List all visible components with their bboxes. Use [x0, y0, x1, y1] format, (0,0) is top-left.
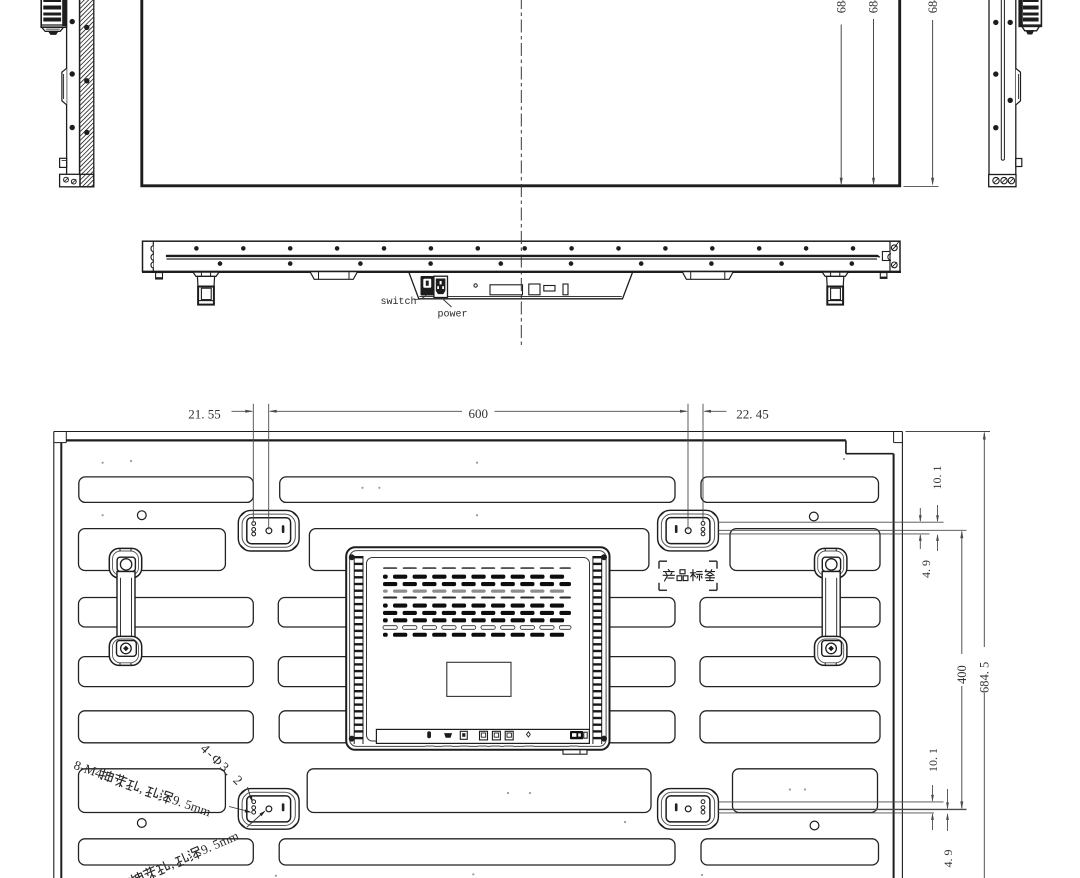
svg-text:684.5: 684.5	[834, 0, 848, 13]
svg-text:power: power	[437, 309, 467, 320]
svg-text:8-M4: 8-M4	[103, 874, 136, 878]
svg-text:684.5: 684.5	[867, 0, 881, 13]
svg-text:600: 600	[468, 406, 488, 421]
svg-text:400: 400	[955, 665, 969, 684]
svg-text:4. 9: 4. 9	[919, 560, 933, 578]
svg-text:switch: switch	[380, 296, 416, 308]
svg-text:21. 55: 21. 55	[188, 407, 221, 422]
svg-text:22. 45: 22. 45	[736, 406, 769, 421]
svg-text:684. 5: 684. 5	[977, 662, 991, 693]
svg-text:4. 9: 4. 9	[941, 850, 955, 868]
svg-text:10. 1: 10. 1	[926, 748, 940, 772]
svg-text:684.5: 684.5	[926, 0, 940, 13]
svg-text:10. 1: 10. 1	[930, 466, 944, 490]
